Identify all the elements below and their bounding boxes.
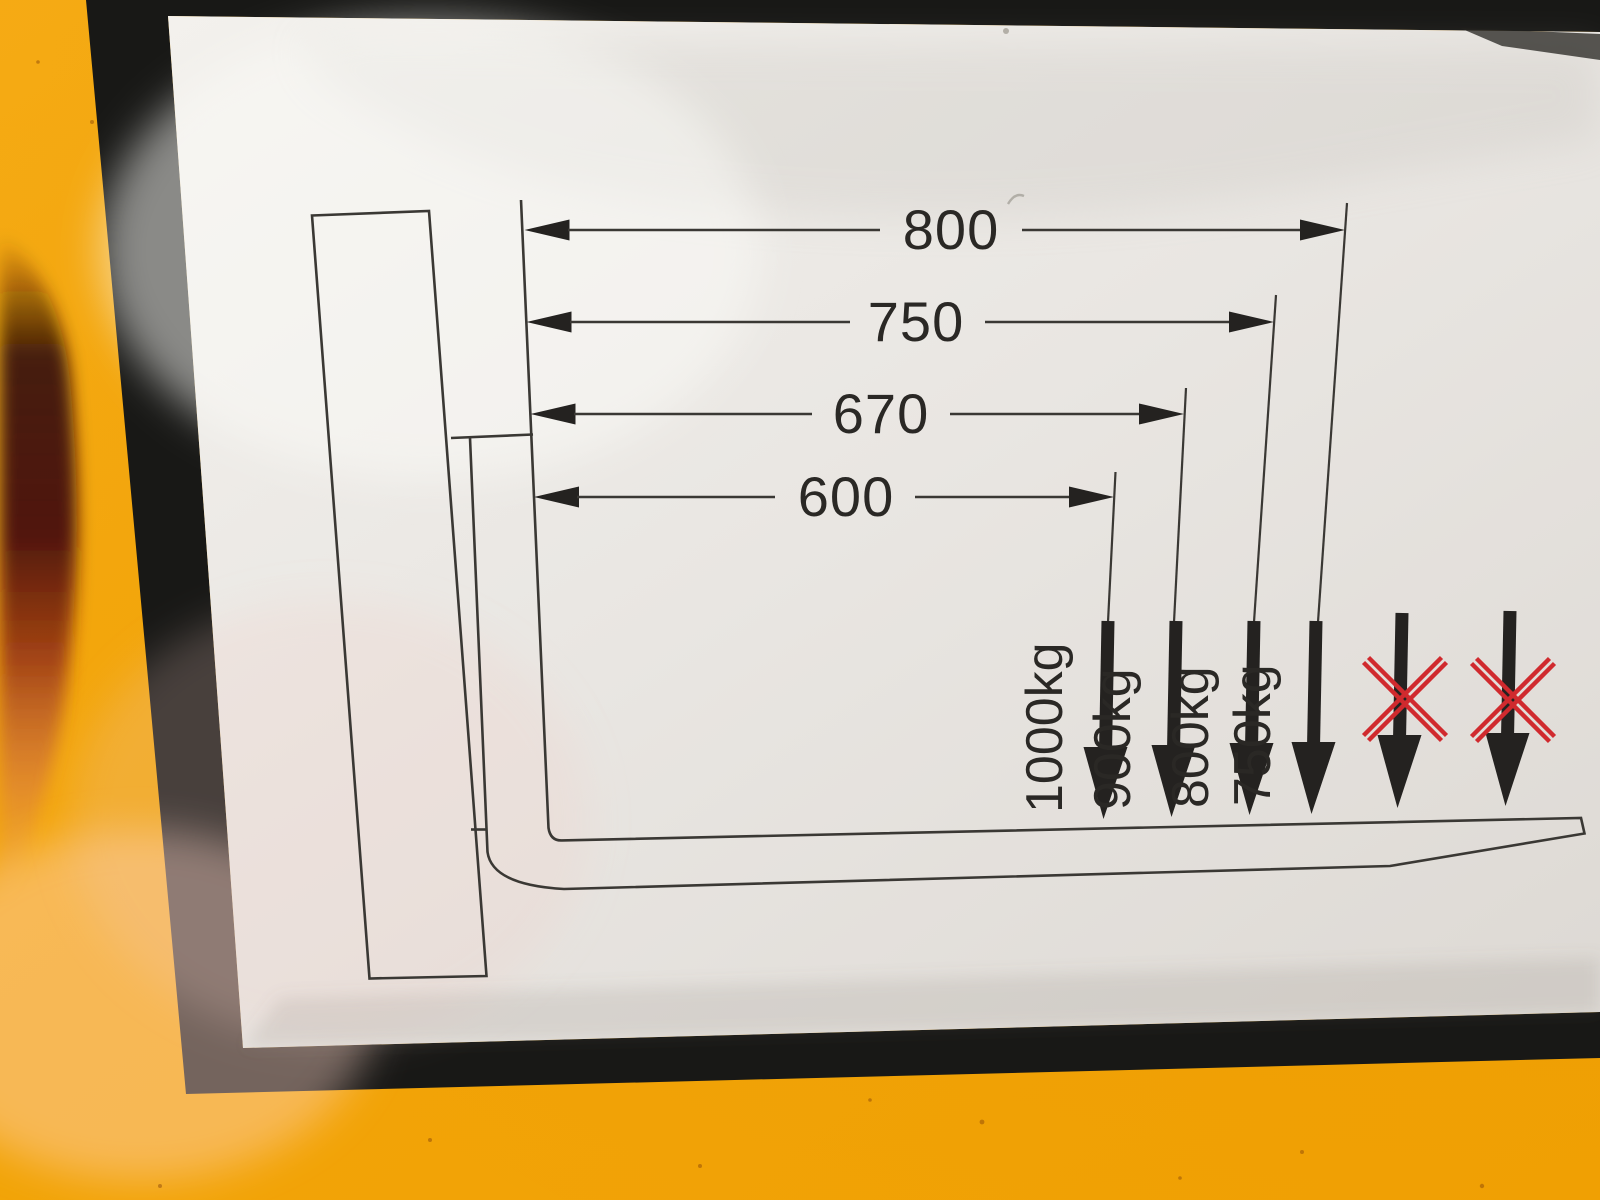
dim-800-label: 800 [903,198,999,261]
load-arrow-750kg-shaft [1314,621,1317,747]
load-label-800kg: 800kg [1162,666,1220,808]
label-face-highlight [100,20,760,480]
dim-750-label: 750 [868,290,964,353]
load-label-900kg: 900kg [1084,668,1142,810]
dim-600-label: 600 [798,465,894,528]
load-label-1000kg: 1000kg [1016,642,1074,813]
photo-of-capacity-label: 800 750 670 600 [0,0,1600,1200]
load-label-750kg: 750kg [1224,664,1282,806]
print-artifact-dot [1003,28,1009,34]
prohibited-arrow-1-shaft [1400,613,1403,740]
dim-670-label: 670 [833,382,929,445]
label-face-pink-tint [70,600,590,1040]
prohibited-arrow-2-shaft [1508,611,1511,738]
